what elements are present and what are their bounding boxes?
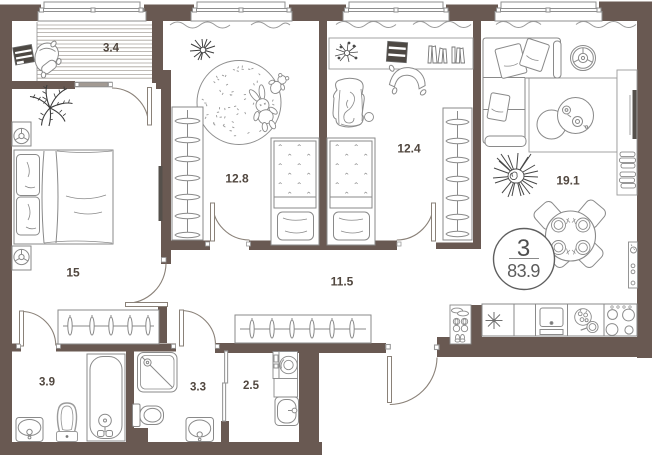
svg-text:3.9: 3.9 [39, 377, 55, 389]
svg-text:12.4: 12.4 [397, 142, 421, 156]
svg-text:3.4: 3.4 [103, 43, 120, 55]
svg-text:3: 3 [517, 235, 530, 262]
svg-text:12.8: 12.8 [225, 172, 249, 186]
svg-text:19.1: 19.1 [556, 174, 580, 188]
svg-text:11.5: 11.5 [331, 275, 354, 289]
svg-text:83.9: 83.9 [507, 261, 540, 281]
svg-text:2.5: 2.5 [243, 380, 260, 392]
svg-text:3.3: 3.3 [190, 382, 206, 394]
svg-text:15: 15 [66, 266, 80, 280]
